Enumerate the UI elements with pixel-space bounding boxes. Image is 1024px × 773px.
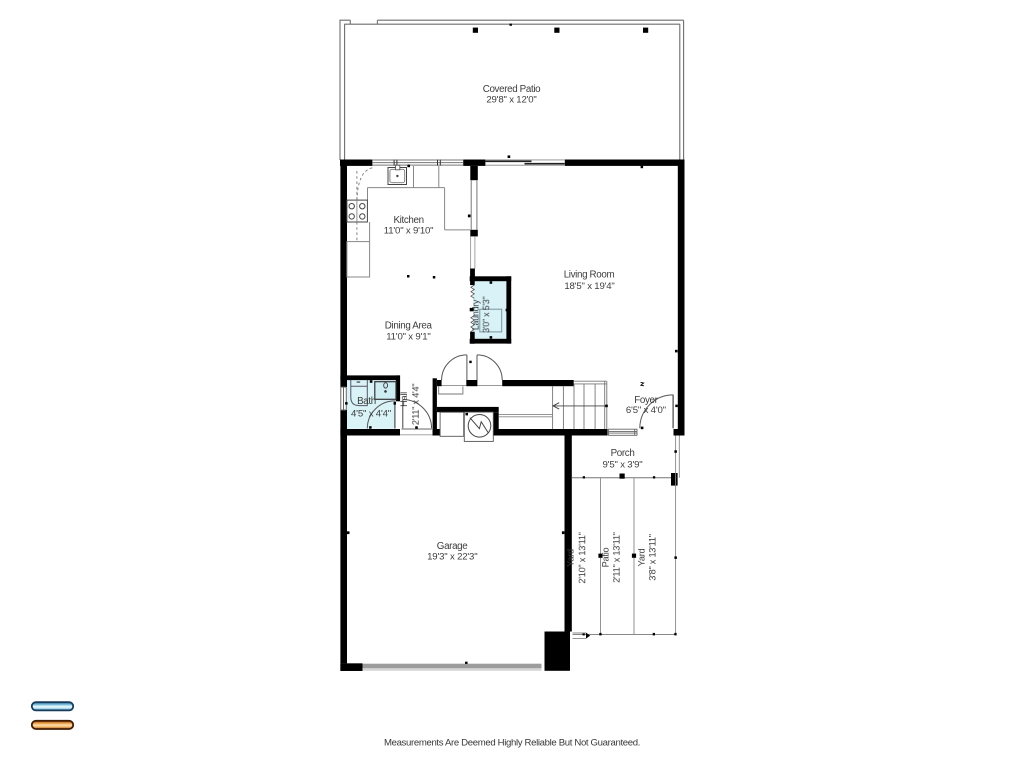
svg-text:9'5" x 3'9": 9'5" x 3'9" <box>603 459 643 470</box>
svg-text:Porch: Porch <box>611 448 635 459</box>
svg-text:29'8" x 12'0": 29'8" x 12'0" <box>486 95 536 106</box>
svg-text:Yard: Yard <box>566 549 576 567</box>
svg-text:4'5" x 4'4": 4'5" x 4'4" <box>351 408 391 419</box>
svg-text:Yard: Yard <box>637 549 647 567</box>
svg-text:Living Room: Living Room <box>564 270 615 281</box>
svg-text:6'5" x 4'0": 6'5" x 4'0" <box>626 405 666 416</box>
svg-text:Laundry: Laundry <box>471 299 481 330</box>
svg-text:Bath: Bath <box>357 396 376 407</box>
svg-text:19'3" x 22'3": 19'3" x 22'3" <box>427 552 477 563</box>
svg-text:18'5" x 19'4": 18'5" x 19'4" <box>564 281 614 292</box>
svg-text:Measurements Are Deemed Highly: Measurements Are Deemed Highly Reliable … <box>384 737 640 748</box>
svg-text:2'11" x 4'4": 2'11" x 4'4" <box>411 384 421 426</box>
svg-text:Kitchen: Kitchen <box>393 215 423 226</box>
svg-text:2'11" x 13'11": 2'11" x 13'11" <box>612 532 622 583</box>
svg-text:Garage: Garage <box>437 541 468 552</box>
svg-text:Hall: Hall <box>399 392 409 407</box>
svg-text:2'10" x 13'11": 2'10" x 13'11" <box>577 532 587 583</box>
svg-text:Patio: Patio <box>601 548 611 568</box>
svg-text:Covered Patio: Covered Patio <box>483 84 541 95</box>
svg-text:3'0" x 5'3": 3'0" x 5'3" <box>481 296 491 332</box>
svg-text:11'0" x 9'10": 11'0" x 9'10" <box>384 226 434 237</box>
svg-text:11'0" x 9'1": 11'0" x 9'1" <box>386 332 430 343</box>
svg-text:3'8" x 13'11": 3'8" x 13'11" <box>648 534 658 580</box>
svg-text:Dining Area: Dining Area <box>385 321 433 332</box>
